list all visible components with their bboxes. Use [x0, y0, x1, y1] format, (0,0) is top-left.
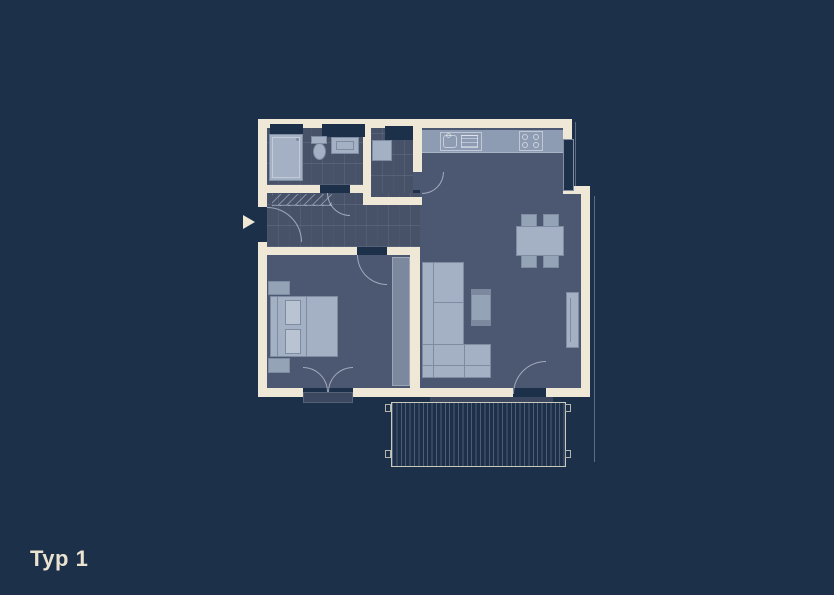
dining-table — [516, 226, 564, 256]
balcony-bracket-right-bottom — [565, 450, 571, 458]
coat-rack — [272, 194, 332, 206]
wall-bedroom-living-divider — [410, 247, 420, 388]
sofa-chaise-line — [464, 344, 465, 378]
shower-drain — [296, 138, 299, 141]
sofa-backrest-line — [433, 262, 434, 378]
floor-plan-page: Typ 1 — [0, 0, 834, 595]
wall-exterior-bottom-middle — [353, 388, 513, 397]
balcony — [391, 402, 566, 467]
balcony-bracket-left-bottom — [385, 450, 391, 458]
wall-exterior-bottom-right — [546, 388, 590, 397]
wall-bathroom-storage-divider — [363, 128, 371, 197]
bed-pillow-1 — [285, 300, 301, 325]
balcony-bracket-right-top — [565, 404, 571, 412]
bed — [270, 296, 338, 357]
kitchen-window — [563, 139, 574, 191]
plan-type-title: Typ 1 — [30, 546, 88, 572]
kitchen-faucet — [446, 133, 451, 138]
balcony-bracket-left-top — [385, 404, 391, 412]
wall-storage-south — [363, 197, 422, 205]
toilet-bowl — [313, 143, 326, 160]
coffee-table-end-1 — [471, 289, 491, 295]
wall-exterior-left-lower — [258, 242, 267, 397]
nightstand-bottom — [268, 358, 290, 373]
french-door-threshold — [303, 392, 353, 403]
entrance-arrow-icon — [243, 215, 255, 229]
storage-shaft — [385, 126, 413, 140]
stove-burner-1 — [522, 134, 528, 140]
sofa-cushion-line-2 — [433, 344, 491, 345]
wall-exterior-right-lower — [581, 186, 590, 397]
stove-burner-3 — [522, 142, 528, 148]
bed-duvet-line — [306, 296, 307, 357]
facade-line-upper — [575, 122, 576, 190]
facade-line-lower — [594, 196, 595, 462]
sofa-cushion-line-1 — [433, 302, 464, 303]
bed-pillow-2 — [285, 329, 301, 354]
sideboard — [566, 292, 579, 348]
wall-bathroom-south-left — [262, 185, 320, 193]
kitchen-drainboard — [461, 135, 478, 148]
dining-chair-3 — [521, 254, 537, 268]
wall-exterior-top — [258, 119, 572, 128]
sideboard-front-line — [570, 298, 571, 342]
wardrobe — [392, 257, 410, 386]
coffee-table-end-2 — [471, 320, 491, 326]
storage-shelf — [372, 140, 392, 161]
dining-chair-4 — [543, 254, 559, 268]
stove-burner-2 — [533, 134, 539, 140]
stove-burner-4 — [533, 142, 539, 148]
nightstand-top — [268, 281, 290, 295]
bed-headboard-line — [277, 296, 278, 357]
wall-exterior-left-upper — [258, 119, 267, 207]
bathroom-sink-basin — [336, 141, 354, 150]
wall-exterior-bottom-left — [258, 388, 303, 397]
wall-storage-east — [413, 128, 422, 172]
sofa-armrest-line — [422, 365, 491, 366]
bathroom-window-right — [322, 124, 365, 137]
wall-bedroom-north-left — [258, 247, 357, 255]
shower-tray — [272, 137, 300, 178]
